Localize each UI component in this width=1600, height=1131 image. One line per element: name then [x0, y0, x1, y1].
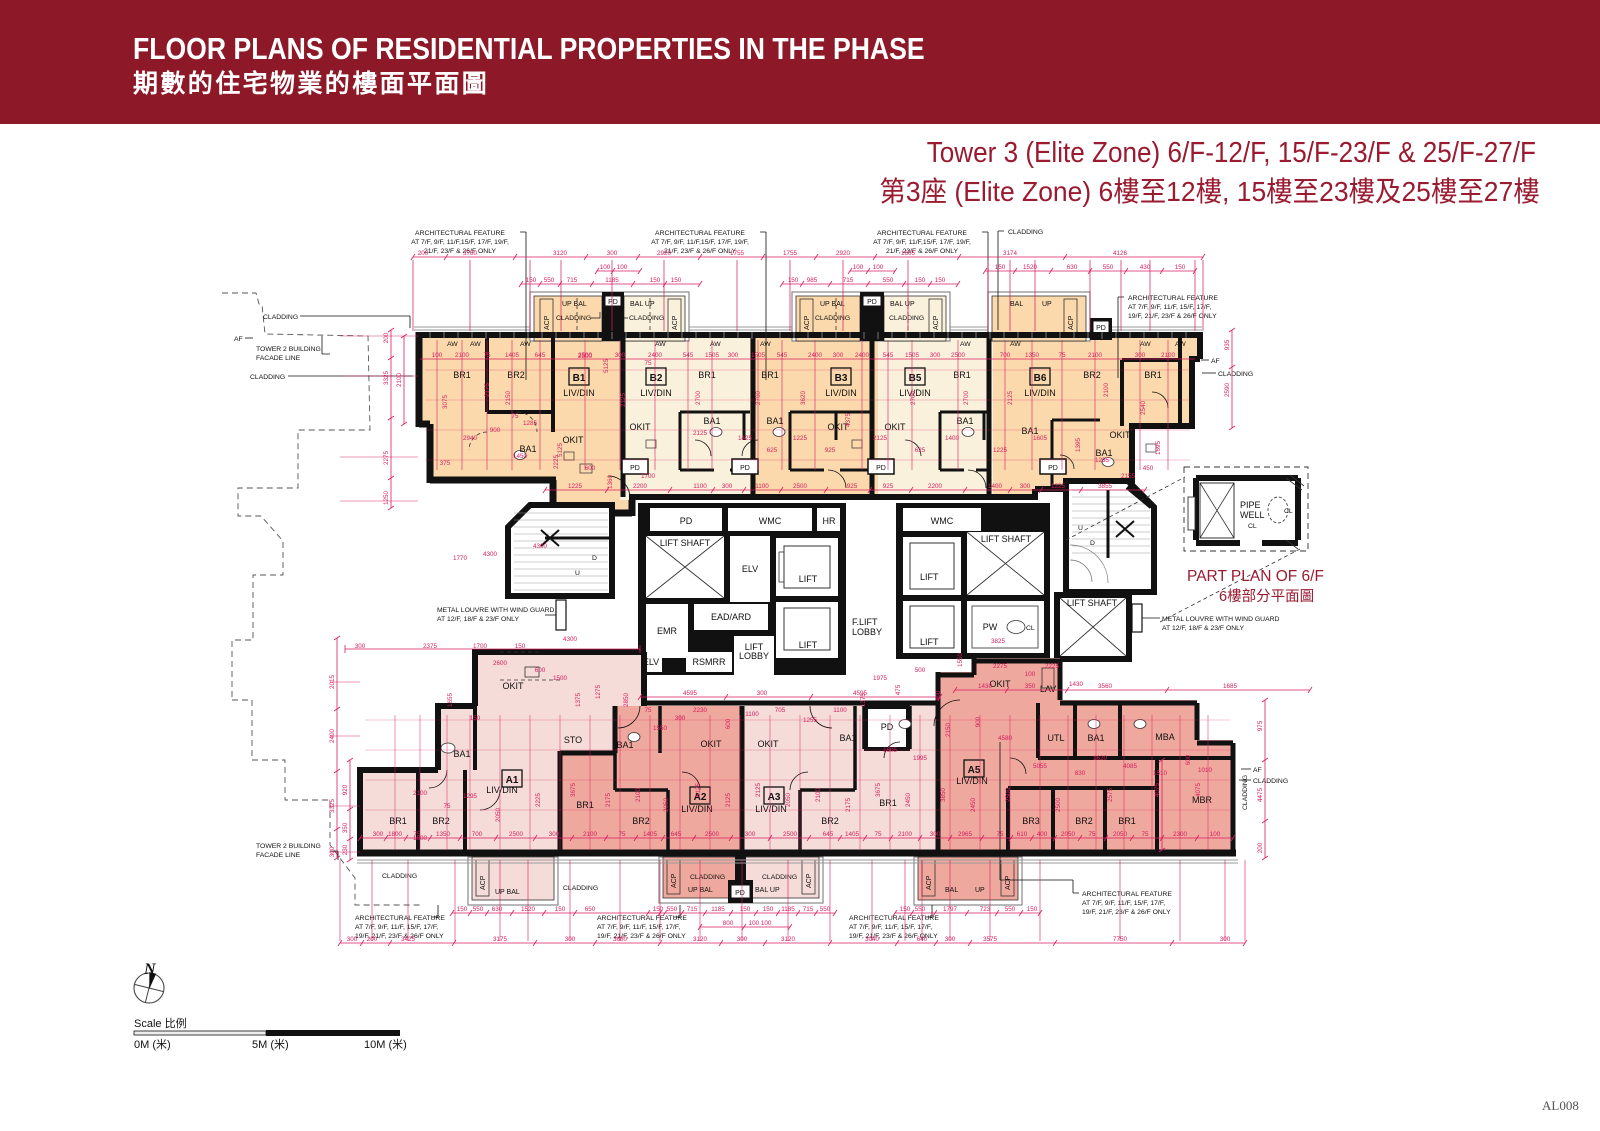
- svg-text:1375: 1375: [860, 693, 867, 708]
- svg-text:CLADDING: CLADDING: [1218, 371, 1253, 378]
- svg-text:1395: 1395: [1075, 438, 1082, 453]
- svg-text:300: 300: [607, 250, 618, 257]
- svg-text:ACP: ACP: [926, 875, 933, 890]
- svg-text:150: 150: [515, 643, 526, 650]
- svg-text:3120: 3120: [553, 250, 568, 257]
- svg-text:2500: 2500: [509, 831, 524, 838]
- svg-text:ACP: ACP: [480, 875, 487, 890]
- svg-text:150: 150: [995, 264, 1006, 271]
- svg-text:AW: AW: [1175, 341, 1186, 348]
- svg-text:1375: 1375: [575, 693, 582, 708]
- svg-text:ARCHITECTURAL FEATURE: ARCHITECTURAL FEATURE: [1128, 295, 1218, 302]
- svg-text:4595: 4595: [683, 690, 698, 697]
- svg-text:550: 550: [667, 906, 678, 913]
- svg-text:150: 150: [1175, 264, 1186, 271]
- svg-text:1185: 1185: [711, 906, 725, 913]
- svg-text:2500: 2500: [1005, 788, 1012, 803]
- svg-text:2575: 2575: [1107, 788, 1114, 803]
- svg-text:BR1: BR1: [761, 370, 779, 380]
- svg-text:2125: 2125: [725, 793, 732, 808]
- svg-text:2200: 2200: [633, 483, 648, 490]
- svg-text:1620: 1620: [1093, 755, 1108, 762]
- svg-text:BR1: BR1: [576, 800, 594, 810]
- svg-text:21/F, 23/F & 26/F ONLY: 21/F, 23/F & 26/F ONLY: [664, 248, 736, 255]
- svg-text:21/F, 23/F & 26/F ONLY: 21/F, 23/F & 26/F ONLY: [886, 248, 958, 255]
- svg-text:300: 300: [930, 831, 941, 838]
- svg-text:715: 715: [687, 906, 698, 913]
- svg-text:UP BAL: UP BAL: [688, 887, 713, 894]
- svg-text:1975: 1975: [873, 675, 888, 682]
- svg-text:LIFT: LIFT: [799, 574, 818, 584]
- svg-text:BR2: BR2: [1075, 816, 1093, 826]
- svg-text:CLADDING: CLADDING: [629, 315, 664, 322]
- svg-text:LIV/DIN: LIV/DIN: [486, 785, 518, 795]
- svg-text:U: U: [1078, 525, 1083, 532]
- svg-text:600: 600: [1185, 754, 1192, 765]
- svg-text:5M (米): 5M (米): [252, 1038, 289, 1051]
- svg-text:2600: 2600: [493, 660, 508, 667]
- svg-text:800: 800: [723, 920, 734, 927]
- svg-text:ACP: ACP: [1005, 875, 1012, 890]
- svg-text:2225: 2225: [553, 455, 560, 470]
- svg-text:230: 230: [342, 844, 349, 855]
- svg-text:UP BAL: UP BAL: [562, 301, 587, 308]
- svg-text:5125: 5125: [695, 783, 702, 798]
- svg-text:150: 150: [555, 906, 566, 913]
- svg-text:705: 705: [775, 707, 786, 714]
- svg-text:150: 150: [650, 277, 661, 284]
- svg-text:CLADDING: CLADDING: [250, 374, 285, 381]
- svg-text:920: 920: [342, 784, 349, 795]
- svg-text:10M (米): 10M (米): [364, 1038, 407, 1051]
- svg-text:5125: 5125: [557, 443, 564, 458]
- svg-text:AT 7/F, 9/F, 11/F, 15/F, 17/F: AT 7/F, 9/F, 11/F, 15/F, 17/F,: [849, 924, 932, 931]
- svg-text:WMC: WMC: [759, 516, 782, 526]
- svg-text:CLADDING: CLADDING: [690, 874, 725, 881]
- svg-text:3675: 3675: [570, 783, 577, 798]
- svg-text:2700: 2700: [755, 391, 762, 406]
- svg-text:300: 300: [745, 831, 756, 838]
- svg-text:2500: 2500: [783, 831, 798, 838]
- svg-text:B1: B1: [573, 373, 586, 384]
- svg-text:1235: 1235: [1095, 457, 1110, 464]
- svg-text:2700: 2700: [963, 391, 970, 406]
- svg-text:MBA: MBA: [1155, 732, 1175, 742]
- svg-text:2200: 2200: [928, 483, 943, 490]
- svg-text:4075: 4075: [1195, 783, 1202, 798]
- svg-text:600: 600: [585, 465, 596, 472]
- svg-text:2920: 2920: [836, 250, 851, 257]
- svg-text:1100: 1100: [745, 711, 759, 718]
- svg-text:1425: 1425: [738, 435, 753, 442]
- svg-text:300: 300: [833, 352, 844, 359]
- svg-text:300: 300: [373, 831, 384, 838]
- svg-text:PD: PD: [608, 299, 618, 306]
- svg-text:75: 75: [1088, 831, 1096, 838]
- svg-text:CLADDING: CLADDING: [1242, 775, 1249, 810]
- svg-text:550: 550: [1103, 264, 1114, 271]
- svg-text:1450: 1450: [513, 453, 528, 460]
- svg-text:ACP: ACP: [804, 315, 811, 330]
- svg-text:100: 100: [853, 264, 864, 271]
- svg-text:300: 300: [757, 690, 768, 697]
- svg-text:150: 150: [470, 715, 481, 722]
- svg-text:AT 7/F, 9/F, 11/F, 15/F, 17/F,: AT 7/F, 9/F, 11/F, 15/F, 17/F,: [1128, 304, 1211, 311]
- svg-text:PD: PD: [680, 516, 693, 526]
- svg-text:PD: PD: [1096, 325, 1106, 332]
- svg-text:600: 600: [535, 667, 546, 674]
- svg-text:500: 500: [915, 667, 926, 674]
- svg-text:2590: 2590: [1224, 383, 1231, 398]
- svg-text:19/F, 21/F, 23/F & 26/F ONLY: 19/F, 21/F, 23/F & 26/F ONLY: [1128, 313, 1217, 320]
- svg-text:650: 650: [585, 906, 596, 913]
- svg-text:1550: 1550: [957, 653, 964, 668]
- svg-text:550: 550: [544, 277, 555, 284]
- svg-text:BR1: BR1: [1118, 816, 1136, 826]
- svg-text:AW: AW: [447, 341, 458, 348]
- svg-text:OKIT: OKIT: [562, 435, 584, 445]
- svg-text:BR2: BR2: [1083, 370, 1101, 380]
- svg-text:AT 12/F, 18/F & 23/F ONLY: AT 12/F, 18/F & 23/F ONLY: [1162, 625, 1244, 632]
- svg-text:AT 7/F, 9/F, 11/F,15/F, 17/F,: AT 7/F, 9/F, 11/F,15/F, 17/F, 19/F,: [651, 239, 749, 246]
- svg-text:430: 430: [1140, 264, 1151, 271]
- svg-text:PD: PD: [881, 722, 894, 732]
- svg-text:1350: 1350: [436, 831, 451, 838]
- svg-text:3850: 3850: [940, 788, 947, 803]
- svg-text:150: 150: [653, 906, 664, 913]
- svg-text:AF: AF: [1253, 767, 1262, 774]
- svg-text:100: 100: [873, 264, 884, 271]
- svg-text:4300: 4300: [563, 636, 578, 643]
- svg-text:100: 100: [1210, 831, 1221, 838]
- svg-text:AW: AW: [655, 341, 666, 348]
- svg-text:CLADDING: CLADDING: [1253, 778, 1288, 785]
- svg-text:2100: 2100: [815, 788, 822, 803]
- svg-text:LIV/DIN: LIV/DIN: [1024, 388, 1056, 398]
- svg-text:4475: 4475: [1257, 788, 1264, 803]
- svg-text:2700: 2700: [910, 391, 917, 406]
- svg-text:LIV/DIN: LIV/DIN: [563, 388, 595, 398]
- svg-text:75: 75: [874, 831, 882, 838]
- svg-text:PW: PW: [983, 622, 998, 632]
- svg-text:715: 715: [803, 906, 814, 913]
- svg-text:1100: 1100: [693, 483, 707, 490]
- svg-text:150: 150: [671, 277, 682, 284]
- svg-text:1275: 1275: [595, 685, 602, 700]
- svg-text:BA1: BA1: [956, 416, 973, 426]
- svg-text:PART PLAN OF 6/F: PART PLAN OF 6/F: [1187, 568, 1324, 585]
- svg-text:1700: 1700: [641, 473, 656, 480]
- svg-text:400: 400: [1037, 831, 1048, 838]
- svg-text:3325: 3325: [383, 371, 390, 386]
- svg-text:1225: 1225: [793, 435, 808, 442]
- svg-text:100 100: 100 100: [749, 920, 772, 927]
- svg-text:D: D: [1090, 540, 1095, 547]
- svg-text:1430: 1430: [978, 683, 993, 690]
- svg-text:4126: 4126: [1113, 250, 1128, 257]
- svg-text:LIFT: LIFT: [920, 572, 939, 582]
- svg-text:2125: 2125: [1007, 391, 1014, 406]
- svg-text:2225: 2225: [535, 793, 542, 808]
- svg-text:BR1: BR1: [1144, 370, 1162, 380]
- svg-text:2100: 2100: [1103, 383, 1110, 398]
- svg-text:N: N: [143, 961, 157, 978]
- svg-text:LIV/DIN: LIV/DIN: [640, 388, 672, 398]
- svg-text:LIFT: LIFT: [920, 637, 939, 647]
- svg-text:630: 630: [492, 906, 503, 913]
- svg-text:100: 100: [600, 264, 611, 271]
- svg-text:ARCHITECTURAL FEATURE: ARCHITECTURAL FEATURE: [355, 915, 445, 922]
- svg-text:645: 645: [823, 831, 834, 838]
- svg-text:1500: 1500: [553, 675, 568, 682]
- svg-text:2100: 2100: [898, 831, 913, 838]
- svg-text:CLADDING: CLADDING: [815, 315, 850, 322]
- svg-text:OKIT: OKIT: [700, 739, 722, 749]
- svg-text:LIV/DIN: LIV/DIN: [755, 804, 787, 814]
- svg-text:LIFT SHAFT: LIFT SHAFT: [1067, 598, 1118, 608]
- svg-text:550: 550: [915, 906, 926, 913]
- svg-text:LIFT: LIFT: [799, 640, 818, 650]
- svg-text:630: 630: [1067, 264, 1078, 271]
- svg-text:19/F, 21/F, 23/F & 26/F ONLY: 19/F, 21/F, 23/F & 26/F ONLY: [597, 933, 686, 940]
- svg-text:625: 625: [767, 447, 778, 454]
- svg-text:BR1: BR1: [698, 370, 716, 380]
- svg-text:2450: 2450: [905, 793, 912, 808]
- svg-text:150: 150: [788, 277, 799, 284]
- svg-text:AW: AW: [470, 341, 481, 348]
- svg-text:LIV/DIN: LIV/DIN: [825, 388, 857, 398]
- svg-text:1405: 1405: [845, 831, 860, 838]
- svg-text:ARCHITECTURAL FEATURE: ARCHITECTURAL FEATURE: [849, 915, 939, 922]
- svg-text:A3: A3: [768, 792, 781, 803]
- svg-text:2100: 2100: [635, 788, 642, 803]
- svg-text:1755: 1755: [783, 250, 798, 257]
- svg-text:Scale 比例: Scale 比例: [134, 1016, 187, 1030]
- svg-text:PD: PD: [735, 890, 745, 897]
- svg-text:OKIT: OKIT: [757, 739, 779, 749]
- svg-text:150: 150: [915, 277, 926, 284]
- svg-text:1360: 1360: [607, 475, 614, 490]
- svg-text:350: 350: [1025, 683, 1036, 690]
- svg-text:WMC: WMC: [931, 516, 954, 526]
- svg-text:475: 475: [895, 684, 902, 695]
- svg-text:21/F, 23/F & 26/F ONLY: 21/F, 23/F & 26/F ONLY: [424, 248, 496, 255]
- svg-text:AF: AF: [234, 336, 243, 343]
- svg-text:AW: AW: [960, 341, 971, 348]
- svg-text:19/F, 21/F, 23/F & 26/F ONLY: 19/F, 21/F, 23/F & 26/F ONLY: [1082, 909, 1171, 916]
- svg-text:AW: AW: [1140, 341, 1151, 348]
- svg-text:B2: B2: [650, 373, 663, 384]
- svg-text:350: 350: [342, 822, 349, 833]
- svg-text:METAL LOUVRE WITH WIND GUARD: METAL LOUVRE WITH WIND GUARD: [437, 607, 555, 614]
- svg-text:BAL: BAL: [1010, 301, 1023, 308]
- svg-text:BAL UP: BAL UP: [890, 301, 915, 308]
- svg-text:2100: 2100: [396, 373, 403, 388]
- svg-text:150: 150: [1027, 906, 1038, 913]
- svg-text:1550: 1550: [653, 725, 668, 732]
- svg-text:1700: 1700: [473, 643, 488, 650]
- svg-text:2125: 2125: [873, 435, 888, 442]
- svg-text:PD: PD: [1048, 465, 1058, 472]
- svg-text:EAD/ARD: EAD/ARD: [711, 612, 752, 622]
- svg-text:LIFT SHAFT: LIFT SHAFT: [660, 538, 711, 548]
- svg-text:1430: 1430: [1069, 681, 1084, 688]
- svg-text:BAL: BAL: [945, 887, 958, 894]
- svg-text:2275: 2275: [383, 451, 390, 466]
- svg-text:B6: B6: [1034, 373, 1047, 384]
- svg-text:150: 150: [935, 277, 946, 284]
- svg-text:BR2: BR2: [507, 370, 525, 380]
- svg-text:FACADE LINE: FACADE LINE: [256, 852, 301, 859]
- svg-text:1510: 1510: [1153, 770, 1168, 777]
- svg-text:1605: 1605: [1033, 435, 1048, 442]
- svg-text:U: U: [575, 570, 580, 577]
- svg-text:3855: 3855: [1098, 483, 1113, 490]
- svg-text:450: 450: [1143, 465, 1154, 472]
- svg-text:A5: A5: [968, 765, 981, 776]
- svg-text:2150: 2150: [505, 391, 512, 406]
- svg-text:830: 830: [1075, 770, 1086, 777]
- svg-text:300: 300: [355, 643, 366, 650]
- svg-text:BR1: BR1: [953, 370, 971, 380]
- svg-text:OKIT: OKIT: [502, 681, 524, 691]
- svg-text:375: 375: [440, 460, 451, 467]
- svg-text:4300: 4300: [533, 543, 548, 550]
- svg-text:F.LIFT: F.LIFT: [852, 617, 878, 627]
- svg-text:1605: 1605: [901, 250, 916, 257]
- svg-text:723: 723: [980, 906, 991, 913]
- svg-text:4085: 4085: [1123, 763, 1138, 770]
- svg-text:1285: 1285: [523, 420, 538, 427]
- svg-text:AT 7/F, 9/F, 11/F,15/F, 17/F,: AT 7/F, 9/F, 11/F,15/F, 17/F, 19/F,: [411, 239, 509, 246]
- svg-text:ARCHITECTURAL FEATURE: ARCHITECTURAL FEATURE: [415, 230, 505, 237]
- svg-text:1255: 1255: [803, 717, 818, 724]
- svg-text:PD: PD: [630, 465, 640, 472]
- svg-text:UP BAL: UP BAL: [495, 889, 520, 896]
- svg-text:2920: 2920: [657, 250, 672, 257]
- svg-text:AF: AF: [1211, 358, 1220, 365]
- svg-text:PD: PD: [876, 465, 886, 472]
- svg-text:4300: 4300: [483, 551, 498, 558]
- svg-text:BR1: BR1: [389, 816, 407, 826]
- svg-text:3620: 3620: [800, 391, 807, 406]
- svg-text:OKIT: OKIT: [629, 422, 651, 432]
- svg-text:TOWER 2 BUILDING: TOWER 2 BUILDING: [256, 843, 321, 850]
- svg-text:975: 975: [1257, 720, 1264, 731]
- svg-text:100: 100: [617, 264, 628, 271]
- svg-text:900: 900: [975, 716, 982, 727]
- svg-text:2050: 2050: [785, 793, 792, 808]
- svg-text:BAL UP: BAL UP: [630, 301, 655, 308]
- svg-text:METAL LOUVRE WITH WIND GUARD: METAL LOUVRE WITH WIND GUARD: [1162, 616, 1280, 623]
- svg-text:300: 300: [549, 831, 560, 838]
- svg-text:CL: CL: [1248, 523, 1257, 530]
- svg-text:925: 925: [847, 483, 858, 490]
- svg-text:2940: 2940: [463, 435, 478, 442]
- svg-text:PIPE: PIPE: [1240, 500, 1261, 510]
- svg-text:EMR: EMR: [657, 626, 678, 636]
- svg-text:ACP: ACP: [672, 315, 679, 330]
- svg-text:550: 550: [883, 277, 894, 284]
- svg-text:ELV: ELV: [742, 564, 758, 574]
- svg-text:100: 100: [1025, 671, 1036, 678]
- svg-text:2500: 2500: [705, 831, 720, 838]
- svg-text:UP: UP: [1042, 301, 1052, 308]
- svg-text:TOWER 2 BUILDING: TOWER 2 BUILDING: [256, 346, 321, 353]
- svg-text:CLADDING: CLADDING: [889, 315, 924, 322]
- svg-text:LIV/DIN: LIV/DIN: [681, 804, 713, 814]
- svg-text:B3: B3: [835, 373, 848, 384]
- svg-text:5125: 5125: [603, 359, 610, 374]
- svg-text:AT 7/F, 9/F, 11/F, 15/F, 17/F: AT 7/F, 9/F, 11/F, 15/F, 17/F,: [1082, 900, 1165, 907]
- svg-text:1250: 1250: [383, 491, 390, 506]
- svg-text:715: 715: [843, 277, 854, 284]
- svg-text:BR1: BR1: [879, 798, 897, 808]
- svg-text:75: 75: [996, 831, 1004, 838]
- svg-text:3075: 3075: [442, 395, 449, 410]
- svg-text:BR3: BR3: [1022, 816, 1040, 826]
- svg-text:AT 12/F, 18/F & 23/F ONLY: AT 12/F, 18/F & 23/F ONLY: [437, 616, 519, 623]
- svg-text:1225: 1225: [1051, 483, 1066, 490]
- svg-text:2850: 2850: [623, 693, 630, 708]
- svg-text:CLADDING: CLADDING: [382, 873, 417, 880]
- svg-text:AT 7/F, 9/F, 11/F, 15/F, 17/F: AT 7/F, 9/F, 11/F, 15/F, 17/F,: [355, 924, 438, 931]
- svg-text:UP BAL: UP BAL: [820, 301, 845, 308]
- svg-text:D: D: [592, 555, 597, 562]
- svg-text:2175: 2175: [484, 383, 491, 398]
- svg-text:0M (米): 0M (米): [134, 1038, 171, 1051]
- svg-text:ACP: ACP: [544, 315, 551, 330]
- svg-text:6樓部分平面圖: 6樓部分平面圖: [1219, 588, 1314, 605]
- svg-text:4075: 4075: [1154, 783, 1161, 798]
- svg-text:BA1: BA1: [616, 740, 633, 750]
- svg-text:2230: 2230: [693, 707, 708, 714]
- svg-text:BA1: BA1: [839, 733, 856, 743]
- svg-text:200: 200: [383, 332, 390, 343]
- svg-text:ARCHITECTURAL FEATURE: ARCHITECTURAL FEATURE: [597, 915, 687, 922]
- svg-text:2125: 2125: [693, 430, 708, 437]
- svg-text:AT 7/F, 9/F, 11/F, 15/F, 17/F: AT 7/F, 9/F, 11/F, 15/F, 17/F,: [597, 924, 680, 931]
- svg-text:550: 550: [473, 906, 484, 913]
- svg-text:LIV/DIN: LIV/DIN: [956, 776, 988, 786]
- svg-text:STO: STO: [564, 735, 582, 745]
- svg-text:1100: 1100: [833, 707, 847, 714]
- svg-text:BA1: BA1: [453, 749, 470, 759]
- svg-text:LOBBY: LOBBY: [739, 651, 769, 661]
- svg-text:1755: 1755: [730, 250, 745, 257]
- svg-text:2375: 2375: [423, 643, 438, 650]
- svg-text:LOBBY: LOBBY: [852, 627, 882, 637]
- svg-text:WELL: WELL: [1240, 510, 1265, 520]
- svg-text:300: 300: [1020, 483, 1031, 490]
- svg-text:925: 925: [825, 447, 836, 454]
- svg-text:2965: 2965: [958, 831, 973, 838]
- svg-text:1695: 1695: [1155, 441, 1162, 456]
- svg-text:1100: 1100: [755, 483, 769, 490]
- svg-text:ACP: ACP: [671, 873, 678, 888]
- svg-text:UP: UP: [975, 887, 985, 894]
- svg-text:1225: 1225: [568, 483, 583, 490]
- svg-text:3560: 3560: [1098, 683, 1113, 690]
- svg-text:150: 150: [526, 277, 537, 284]
- svg-text:300: 300: [728, 352, 739, 359]
- svg-text:1655: 1655: [447, 693, 454, 708]
- svg-text:OKIT: OKIT: [1109, 430, 1131, 440]
- svg-text:AL008: AL008: [1542, 1098, 1579, 1113]
- svg-text:300: 300: [722, 483, 733, 490]
- svg-text:2700: 2700: [695, 391, 702, 406]
- svg-text:AT 7/F, 9/F, 11/F,15/F, 17/F,: AT 7/F, 9/F, 11/F,15/F, 17/F, 19/F,: [873, 239, 971, 246]
